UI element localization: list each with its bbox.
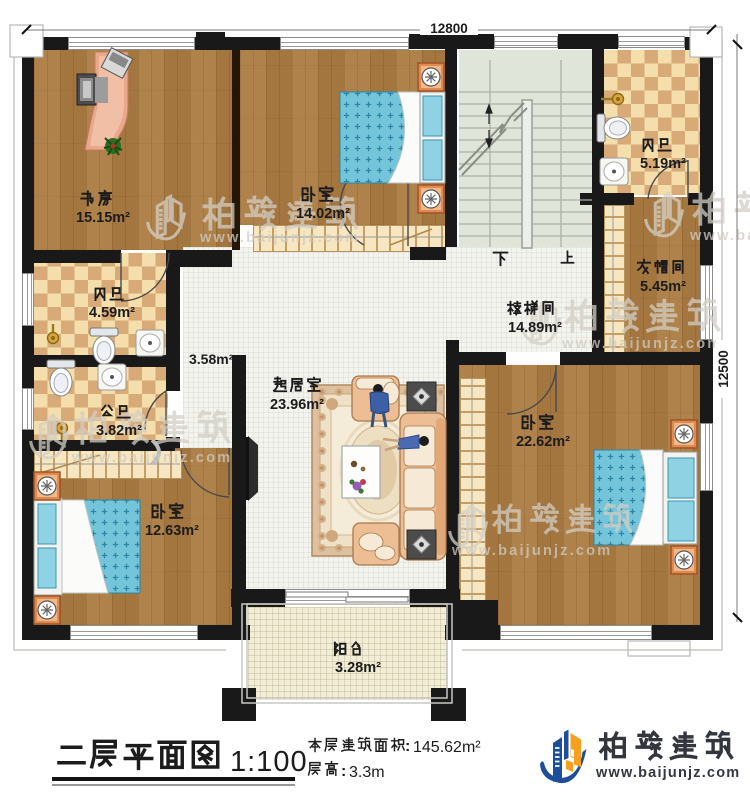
svg-text:12800: 12800 [430, 21, 468, 36]
svg-text:12500: 12500 [716, 350, 731, 388]
svg-text:12.63m²: 12.63m² [145, 523, 199, 539]
svg-text:www.baijunjz.com: www.baijunjz.com [451, 543, 612, 559]
svg-text:5.19m²: 5.19m² [640, 156, 686, 172]
svg-text:4.59m²: 4.59m² [89, 305, 135, 321]
svg-text::: : [405, 738, 410, 755]
svg-text:3.28m²: 3.28m² [335, 660, 381, 676]
svg-text:3.3m: 3.3m [349, 764, 385, 781]
svg-text:145.62m²: 145.62m² [413, 739, 481, 756]
svg-text::: : [341, 763, 346, 780]
svg-text:14.02m²: 14.02m² [296, 206, 350, 222]
svg-text:3.58m²: 3.58m² [189, 351, 234, 367]
svg-text:5.45m²: 5.45m² [640, 279, 686, 295]
svg-text:1:100: 1:100 [230, 746, 308, 778]
svg-text:www.baijunjz.com: www.baijunjz.com [71, 450, 232, 466]
svg-text:www.baijunjz.com: www.baijunjz.com [561, 336, 722, 352]
svg-text:15.15m²: 15.15m² [76, 210, 130, 226]
svg-text:22.62m²: 22.62m² [516, 434, 570, 450]
svg-text:www.baijunjz.com: www.baijunjz.com [199, 230, 360, 246]
svg-text:www.baijunjz.com: www.baijunjz.com [689, 228, 750, 244]
svg-text:3.82m²: 3.82m² [96, 423, 142, 439]
svg-text:www.baijunjz.com: www.baijunjz.com [595, 765, 740, 781]
svg-text:14.89m²: 14.89m² [508, 320, 562, 336]
svg-text:23.96m²: 23.96m² [270, 397, 324, 413]
